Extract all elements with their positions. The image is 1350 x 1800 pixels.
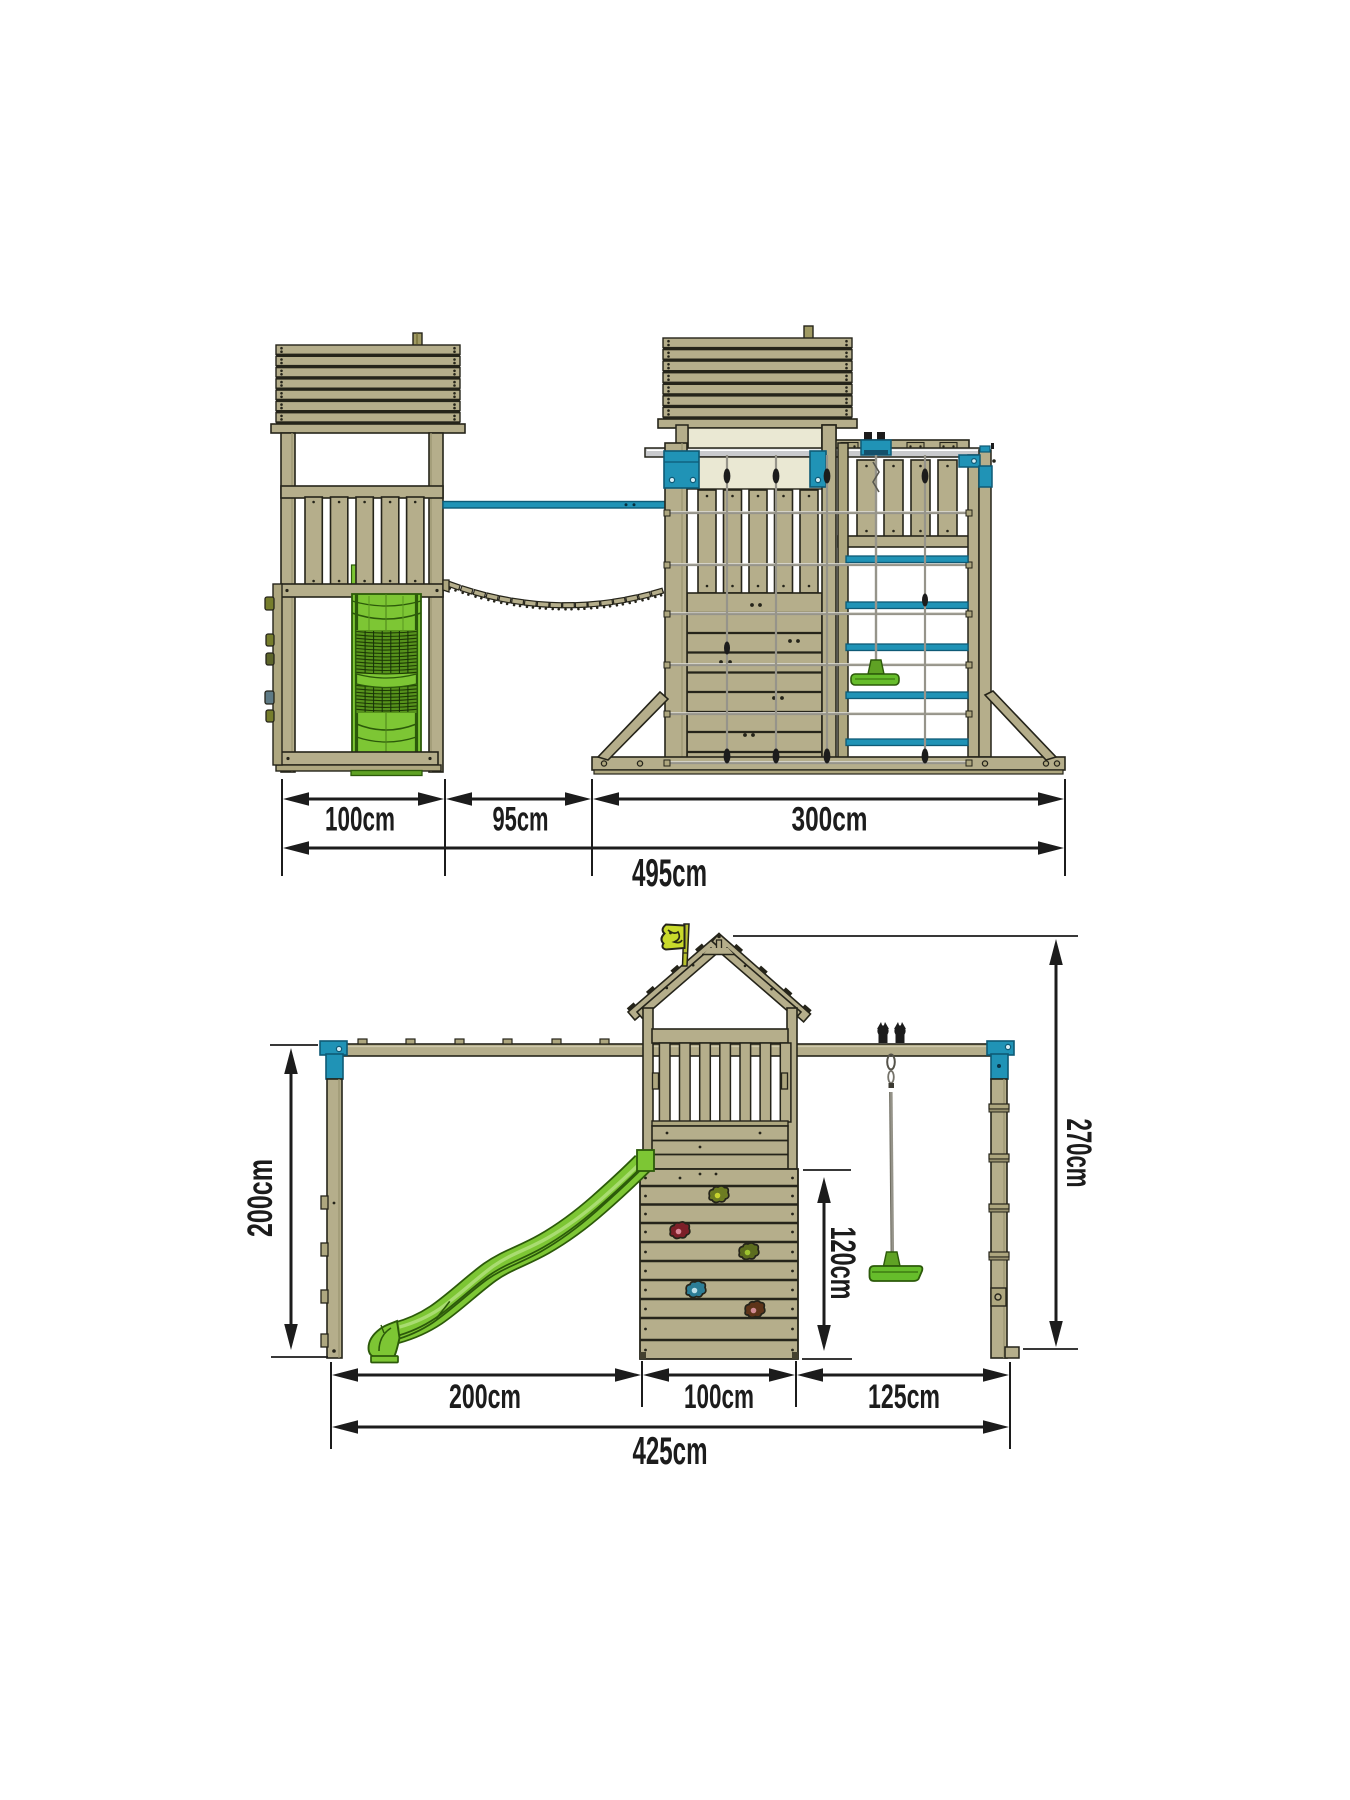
svg-text:100cm: 100cm xyxy=(325,801,395,839)
svg-text:200cm: 200cm xyxy=(241,1159,280,1237)
svg-text:425cm: 425cm xyxy=(633,1430,708,1473)
svg-text:120cm: 120cm xyxy=(823,1227,862,1300)
svg-text:100cm: 100cm xyxy=(684,1378,754,1416)
svg-text:300cm: 300cm xyxy=(792,801,868,839)
svg-text:270cm: 270cm xyxy=(1059,1119,1098,1188)
svg-text:200cm: 200cm xyxy=(449,1378,521,1416)
svg-text:95cm: 95cm xyxy=(493,801,549,839)
svg-text:125cm: 125cm xyxy=(868,1378,940,1416)
svg-text:495cm: 495cm xyxy=(632,852,707,895)
